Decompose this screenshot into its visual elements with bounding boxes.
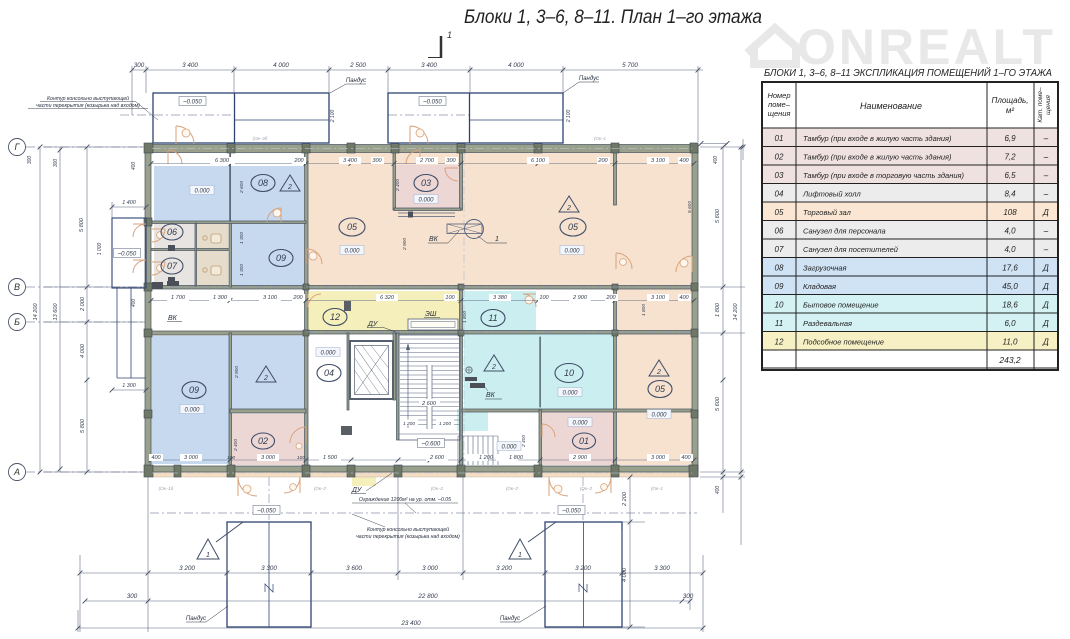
svg-text:13 600: 13 600 <box>53 303 59 321</box>
svg-text:1: 1 <box>518 552 522 559</box>
svg-text:(Ок–2: (Ок–2 <box>506 486 519 491</box>
svg-text:3 000: 3 000 <box>422 565 438 572</box>
svg-text:23 400: 23 400 <box>400 620 421 627</box>
svg-text:100: 100 <box>297 455 305 461</box>
svg-text:2 900: 2 900 <box>572 455 588 461</box>
svg-text:(Ок–1б: (Ок–1б <box>159 486 174 491</box>
svg-text:3 100: 3 100 <box>651 158 666 164</box>
svg-text:22 800: 22 800 <box>417 593 438 600</box>
svg-text:11: 11 <box>775 319 783 328</box>
svg-text:2 200: 2 200 <box>622 491 628 507</box>
svg-text:Ограждение 1200м² на ур. отм.: Ограждение 1200м² на ур. отм. –0.05 <box>359 497 451 503</box>
svg-text:–: – <box>1043 245 1049 254</box>
svg-text:Лифтовый холл: Лифтовый холл <box>802 190 862 199</box>
svg-text:09: 09 <box>276 253 286 263</box>
svg-text:100: 100 <box>227 455 235 461</box>
svg-text:02: 02 <box>775 153 784 162</box>
svg-text:(Ок–2: (Ок–2 <box>431 486 444 491</box>
svg-text:2 100: 2 100 <box>566 110 572 124</box>
svg-text:0.000: 0.000 <box>501 445 517 451</box>
svg-text:200: 200 <box>293 158 304 164</box>
svg-text:(Ок–2: (Ок–2 <box>580 486 593 491</box>
svg-text:4,0: 4,0 <box>1004 245 1016 254</box>
svg-text:6,5: 6,5 <box>1004 171 1016 180</box>
svg-text:5 800: 5 800 <box>79 217 85 232</box>
svg-text:01: 01 <box>775 134 784 143</box>
svg-text:Д: Д <box>1042 282 1049 291</box>
svg-text:1 200: 1 200 <box>479 455 494 461</box>
svg-text:18,6: 18,6 <box>1002 301 1018 310</box>
svg-text:300: 300 <box>134 62 145 69</box>
svg-text:3 380: 3 380 <box>493 295 508 301</box>
svg-text:Кладовая: Кладовая <box>803 282 836 291</box>
svg-text:ДУ: ДУ <box>367 321 379 328</box>
svg-text:–0.050: –0.050 <box>117 252 137 258</box>
svg-text:0.000: 0.000 <box>564 249 580 255</box>
svg-text:–: – <box>1043 227 1049 236</box>
svg-text:3 000: 3 000 <box>184 455 199 461</box>
svg-text:ВК: ВК <box>168 315 178 322</box>
svg-text:Д: Д <box>1042 208 1049 217</box>
svg-text:Пандус: Пандус <box>500 616 520 622</box>
svg-text:Д: Д <box>1042 319 1049 328</box>
svg-text:2 700: 2 700 <box>419 158 435 164</box>
svg-text:1 200: 1 200 <box>403 421 415 427</box>
svg-text:Д: Д <box>1042 301 1049 310</box>
svg-text:5 700: 5 700 <box>622 62 638 69</box>
svg-text:Контур консольно выступающей: Контур консольно выступающей <box>47 95 129 102</box>
svg-text:Санузел для посетителей: Санузел для посетителей <box>803 245 899 254</box>
svg-text:3 000: 3 000 <box>651 455 666 461</box>
svg-text:–: – <box>1043 171 1049 180</box>
svg-text:1 800: 1 800 <box>641 304 647 316</box>
svg-text:(Ок–3б: (Ок–3б <box>253 136 268 141</box>
svg-text:09: 09 <box>189 385 199 395</box>
svg-text:07: 07 <box>775 245 784 254</box>
svg-text:6 100: 6 100 <box>531 158 546 164</box>
svg-text:1 800: 1 800 <box>462 311 468 323</box>
svg-text:1: 1 <box>447 30 452 40</box>
svg-text:–0.050: –0.050 <box>561 509 581 515</box>
svg-text:03: 03 <box>775 171 784 180</box>
svg-text:2: 2 <box>566 205 571 212</box>
svg-text:1 400: 1 400 <box>122 200 136 206</box>
svg-text:2: 2 <box>656 369 661 376</box>
svg-text:Загрузочная: Загрузочная <box>803 264 847 273</box>
svg-text:400: 400 <box>679 158 689 164</box>
svg-text:Номер: Номер <box>767 91 790 100</box>
svg-text:Д: Д <box>1042 338 1049 347</box>
svg-text:6 320: 6 320 <box>380 295 395 301</box>
svg-text:поме–: поме– <box>768 100 791 109</box>
svg-text:45,0: 45,0 <box>1002 282 1018 291</box>
svg-text:3 300: 3 300 <box>654 565 670 572</box>
svg-text:(Ок–2: (Ок–2 <box>314 486 327 491</box>
svg-text:3 200: 3 200 <box>496 565 512 572</box>
svg-text:В: В <box>14 282 20 292</box>
svg-text:0.000: 0.000 <box>184 408 200 414</box>
svg-text:0.000: 0.000 <box>194 189 210 195</box>
svg-text:3 400: 3 400 <box>182 62 198 69</box>
svg-text:ДУ: ДУ <box>351 487 363 494</box>
svg-text:–0.600: –0.600 <box>421 442 441 448</box>
svg-text:11,0: 11,0 <box>1003 338 1019 347</box>
svg-text:БЛОКИ 1, 3–6, 8–11 ЭКСПЛИКА: БЛОКИ 1, 3–6, 8–11 ЭКСПЛИКАЦИЯ ПОМЕЩЕНИЙ… <box>764 66 1052 79</box>
svg-text:300: 300 <box>127 593 138 600</box>
svg-text:300: 300 <box>372 158 382 164</box>
svg-text:03: 03 <box>421 178 431 188</box>
svg-text:04: 04 <box>324 368 334 378</box>
svg-text:300: 300 <box>27 156 33 165</box>
svg-text:8,4: 8,4 <box>1004 190 1016 199</box>
svg-text:3 400: 3 400 <box>343 158 358 164</box>
svg-text:11: 11 <box>488 313 497 323</box>
svg-text:0.000: 0.000 <box>344 249 360 255</box>
svg-text:1 800: 1 800 <box>509 455 524 461</box>
svg-text:Подсобное помещение: Подсобное помещение <box>803 338 884 347</box>
svg-text:05: 05 <box>775 208 784 217</box>
svg-text:1 300: 1 300 <box>213 295 228 301</box>
svg-text:Пандус: Пандус <box>346 78 366 84</box>
svg-text:243,2: 243,2 <box>998 355 1021 365</box>
svg-text:3 600: 3 600 <box>346 565 362 572</box>
svg-text:06: 06 <box>775 227 784 236</box>
svg-text:3 300: 3 300 <box>261 565 277 572</box>
svg-text:–0.050: –0.050 <box>256 509 276 515</box>
svg-text:Торговый зал: Торговый зал <box>803 208 852 217</box>
svg-text:0.000: 0.000 <box>418 198 434 204</box>
svg-text:7,2: 7,2 <box>1004 153 1016 162</box>
svg-text:Тамбур (при входе в жилую част: Тамбур (при входе в жилую часть здания) <box>803 134 952 143</box>
svg-text:щения: щения <box>768 109 791 118</box>
svg-text:08: 08 <box>258 178 268 188</box>
svg-text:1 800: 1 800 <box>715 302 721 317</box>
svg-text:100: 100 <box>445 295 455 301</box>
svg-text:Пандус: Пандус <box>186 616 206 622</box>
svg-text:Контур консольно выступающей: Контур консольно выступающей <box>367 526 449 533</box>
svg-text:3 400: 3 400 <box>421 62 437 69</box>
svg-text:2 400: 2 400 <box>395 179 401 192</box>
svg-text:Санузел для персонала: Санузел для персонала <box>803 227 886 236</box>
svg-text:300: 300 <box>53 159 59 168</box>
svg-text:0.000: 0.000 <box>562 391 578 397</box>
svg-text:10: 10 <box>564 368 574 378</box>
svg-text:6,9: 6,9 <box>1004 134 1016 143</box>
svg-text:1 700: 1 700 <box>171 295 186 301</box>
svg-text:04: 04 <box>775 190 784 199</box>
svg-text:Тамбур (при входе в жилую част: Тамбур (при входе в жилую часть здания) <box>803 153 952 162</box>
svg-text:1 300: 1 300 <box>239 232 245 244</box>
svg-text:2 400: 2 400 <box>233 439 239 452</box>
svg-text:400: 400 <box>715 486 721 495</box>
svg-text:Кат. поме–: Кат. поме– <box>1037 87 1044 123</box>
svg-text:м²: м² <box>1006 106 1014 115</box>
svg-text:09: 09 <box>775 282 784 291</box>
svg-text:2 100: 2 100 <box>330 110 336 124</box>
svg-text:2 900: 2 900 <box>402 238 408 251</box>
svg-text:10: 10 <box>775 301 784 310</box>
svg-text:2 400: 2 400 <box>521 435 527 448</box>
svg-text:5 600: 5 600 <box>715 396 721 411</box>
svg-text:12: 12 <box>775 338 784 347</box>
svg-text:108: 108 <box>1003 208 1017 217</box>
svg-text:(Ок–1: (Ок–1 <box>594 136 607 141</box>
svg-text:части перекрытия (козырька над: части перекрытия (козырька над входом) <box>356 534 460 540</box>
svg-text:12: 12 <box>330 312 340 322</box>
svg-text:Блоки 1, 3–6, 8–11. План 1: Блоки 1, 3–6, 8–11. План 1–го этажа <box>464 7 762 28</box>
svg-text:4 000: 4 000 <box>622 567 628 582</box>
svg-text:ВК: ВК <box>429 236 439 243</box>
svg-text:1 000: 1 000 <box>97 243 103 256</box>
svg-text:0.000: 0.000 <box>651 413 667 419</box>
svg-text:200: 200 <box>605 295 616 301</box>
svg-text:4 000: 4 000 <box>273 62 289 69</box>
svg-text:0.000: 0.000 <box>572 421 588 427</box>
svg-text:400: 400 <box>681 455 691 461</box>
svg-text:3 200: 3 200 <box>575 565 591 572</box>
svg-text:2: 2 <box>491 364 496 371</box>
svg-text:6,0: 6,0 <box>1004 319 1016 328</box>
svg-text:3 000: 3 000 <box>261 455 276 461</box>
svg-text:(Ок–1: (Ок–1 <box>651 486 664 491</box>
svg-text:3 100: 3 100 <box>651 295 666 301</box>
svg-text:2 900: 2 900 <box>572 295 588 301</box>
svg-text:1: 1 <box>495 236 499 243</box>
svg-text:Наименование: Наименование <box>860 101 922 111</box>
svg-text:3 200: 3 200 <box>179 565 195 572</box>
svg-text:части перекрытия (козырька над: части перекрытия (козырька над входом) <box>36 103 140 109</box>
svg-text:400: 400 <box>131 299 137 308</box>
svg-text:1 200: 1 200 <box>439 421 451 427</box>
svg-text:–: – <box>1043 153 1049 162</box>
svg-text:1 500: 1 500 <box>323 455 338 461</box>
svg-text:14 200: 14 200 <box>733 303 739 321</box>
svg-text:4 000: 4 000 <box>508 62 524 69</box>
svg-text:100: 100 <box>539 295 549 301</box>
svg-text:2 600: 2 600 <box>429 455 445 461</box>
svg-text:300: 300 <box>446 158 456 164</box>
svg-text:–: – <box>1043 190 1049 199</box>
svg-text:2 000: 2 000 <box>80 296 86 312</box>
svg-text:Площадь,: Площадь, <box>992 96 1029 105</box>
svg-text:5 600: 5 600 <box>715 208 721 223</box>
svg-text:4 000: 4 000 <box>80 343 86 358</box>
svg-text:400: 400 <box>131 162 137 171</box>
svg-text:5 600: 5 600 <box>687 201 693 213</box>
svg-text:3 100: 3 100 <box>263 295 278 301</box>
svg-text:14 200: 14 200 <box>33 303 39 321</box>
svg-text:2 600: 2 600 <box>239 181 245 194</box>
svg-text:ВК: ВК <box>486 392 496 399</box>
svg-text:05: 05 <box>568 222 579 232</box>
svg-text:200: 200 <box>292 295 303 301</box>
svg-text:17,6: 17,6 <box>1002 264 1018 273</box>
svg-text:щения: щения <box>1045 95 1052 115</box>
svg-text:01: 01 <box>579 436 589 446</box>
svg-text:2: 2 <box>263 375 268 382</box>
svg-text:07: 07 <box>167 261 178 271</box>
svg-text:Б: Б <box>14 317 20 327</box>
svg-text:05: 05 <box>655 384 666 394</box>
svg-text:1 300: 1 300 <box>122 383 136 389</box>
svg-text:06: 06 <box>167 227 177 237</box>
svg-text:02: 02 <box>258 436 268 446</box>
svg-text:Бытовое помещение: Бытовое помещение <box>803 301 879 310</box>
svg-text:2 500: 2 500 <box>349 62 366 69</box>
svg-text:–0.050: –0.050 <box>422 100 442 106</box>
svg-text:Раздевальная: Раздевальная <box>803 319 852 328</box>
svg-text:4,0: 4,0 <box>1004 227 1016 236</box>
svg-text:400: 400 <box>151 455 161 461</box>
svg-text:–0.050: –0.050 <box>182 100 202 106</box>
svg-text:0.000: 0.000 <box>320 351 336 357</box>
svg-text:1: 1 <box>206 552 210 559</box>
svg-text:А: А <box>13 467 20 477</box>
svg-text:2: 2 <box>287 184 292 191</box>
svg-text:–: – <box>1043 134 1049 143</box>
svg-text:Пандус: Пандус <box>579 76 599 82</box>
svg-text:2 900: 2 900 <box>234 366 240 379</box>
svg-text:1 300: 1 300 <box>239 264 245 276</box>
svg-text:05: 05 <box>347 222 358 232</box>
svg-text:300: 300 <box>683 593 694 600</box>
svg-text:400: 400 <box>713 156 719 165</box>
svg-text:6 300: 6 300 <box>215 158 230 164</box>
svg-text:2 600: 2 600 <box>421 401 437 407</box>
svg-text:5 800: 5 800 <box>80 418 86 433</box>
svg-text:Д: Д <box>1042 264 1049 273</box>
svg-text:08: 08 <box>775 264 784 273</box>
svg-text:ЭШ: ЭШ <box>425 311 437 318</box>
svg-text:Тамбур (при входе в торговую ч: Тамбур (при входе в торговую часть здани… <box>803 171 965 180</box>
svg-text:400: 400 <box>679 295 689 301</box>
svg-text:200: 200 <box>597 158 608 164</box>
